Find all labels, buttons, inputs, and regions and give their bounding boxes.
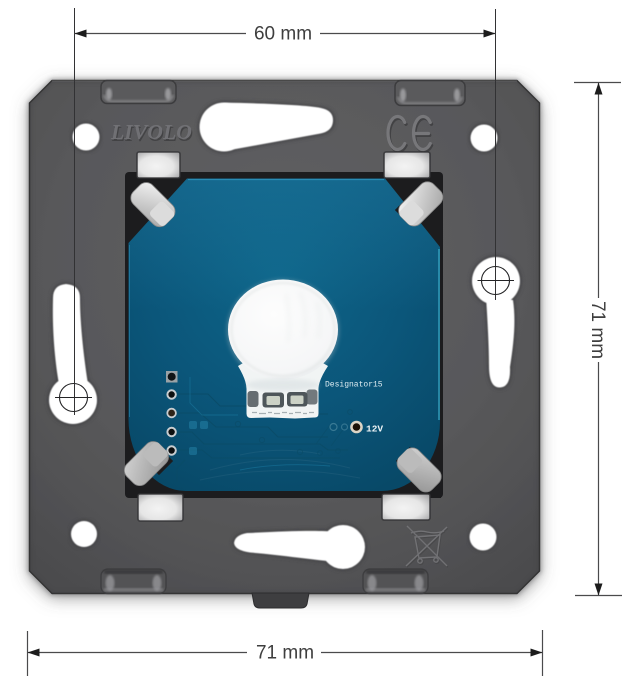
- svg-text:12V: 12V: [366, 424, 383, 435]
- svg-text:Designator15: Designator15: [325, 381, 383, 390]
- svg-text:LIVOLO: LIVOLO: [110, 120, 192, 144]
- svg-text:71 mm: 71 mm: [587, 301, 608, 359]
- svg-text:71 mm: 71 mm: [256, 643, 314, 664]
- svg-text:60 mm: 60 mm: [254, 24, 312, 45]
